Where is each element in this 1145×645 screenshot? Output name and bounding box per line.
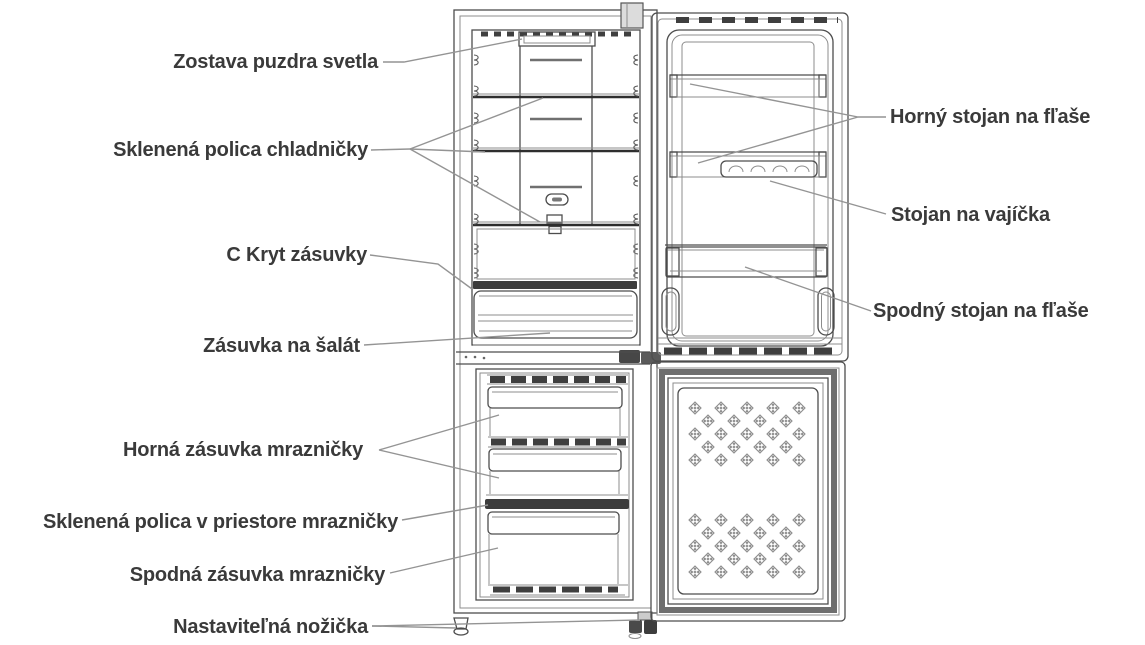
freezer-compartment (476, 369, 633, 600)
leader-salad-drawer (364, 333, 550, 345)
drawer-cover-panel (477, 229, 635, 279)
freezer-door-panel (678, 388, 818, 594)
label-upper-freezer-drawer: Horná zásuvka mrazničky (123, 438, 363, 462)
label-lower-bottle-rack: Spodný stojan na fľaše (873, 299, 1089, 323)
leader-lines (364, 39, 886, 628)
leader-adjustable-foot (372, 620, 640, 628)
leader-upper-freezer-drawer (379, 415, 499, 478)
door-pattern-bottom (689, 514, 805, 578)
leader-upper-bottle-rack (690, 84, 886, 163)
label-adjustable-foot: Nastaviteľná nožička (173, 615, 368, 639)
label-freezer-glass-shelf: Sklenená polica v priestore mrazničky (43, 510, 398, 534)
freezer-drawer-3 (488, 512, 619, 584)
freezer-drawer-1 (488, 387, 622, 436)
label-salad-drawer: Zásuvka na šalát (203, 334, 360, 358)
leader-lower-bottle-rack (745, 267, 871, 311)
lower-bottle-rack-shape (665, 245, 827, 277)
adjustable-feet (454, 612, 657, 639)
drawer-cover-front (473, 281, 637, 289)
freezer-drawer-2 (489, 449, 621, 494)
leader-freezer-shelf (402, 505, 488, 520)
label-egg-rack: Stojan na vajíčka (891, 203, 1050, 227)
fridge-compartment (472, 30, 640, 345)
door-seal (667, 30, 833, 346)
leader-lower-freezer-drawer (390, 548, 498, 573)
label-lower-freezer-drawer: Spodná zásuvka mrazničky (130, 563, 385, 587)
leader-drawer-cover (370, 255, 472, 289)
middle-foot (629, 620, 642, 633)
label-light-housing-assembly: Zostava puzdra svetla (173, 50, 378, 74)
shelf-support-bumps (474, 55, 638, 278)
freezer-door (651, 362, 845, 621)
light-housing (519, 32, 595, 46)
label-drawer-cover: C Kryt zásuvky (226, 243, 367, 267)
salad-drawer-shape (474, 291, 637, 338)
cabinet (454, 3, 661, 639)
freezer-glass-shelf-shape (485, 495, 629, 509)
label-fridge-glass-shelf: Sklenená polica chladničky (113, 138, 368, 162)
cabinet-outer-edge (454, 10, 657, 613)
top-hinge (621, 3, 643, 28)
leader-fridge-shelves (371, 98, 543, 222)
egg-tray (721, 161, 817, 177)
door-pattern-top (689, 402, 805, 466)
label-upper-bottle-rack: Horný stojan na fľaše (890, 105, 1090, 129)
refrigerator-parts-diagram: Zostava puzdra svetla Sklenená polica ch… (0, 0, 1145, 645)
fridge-door (652, 13, 848, 361)
upper-bottle-rack-1 (670, 75, 826, 97)
upper-bottle-rack-2 (670, 152, 826, 177)
leader-light-housing (383, 39, 522, 62)
